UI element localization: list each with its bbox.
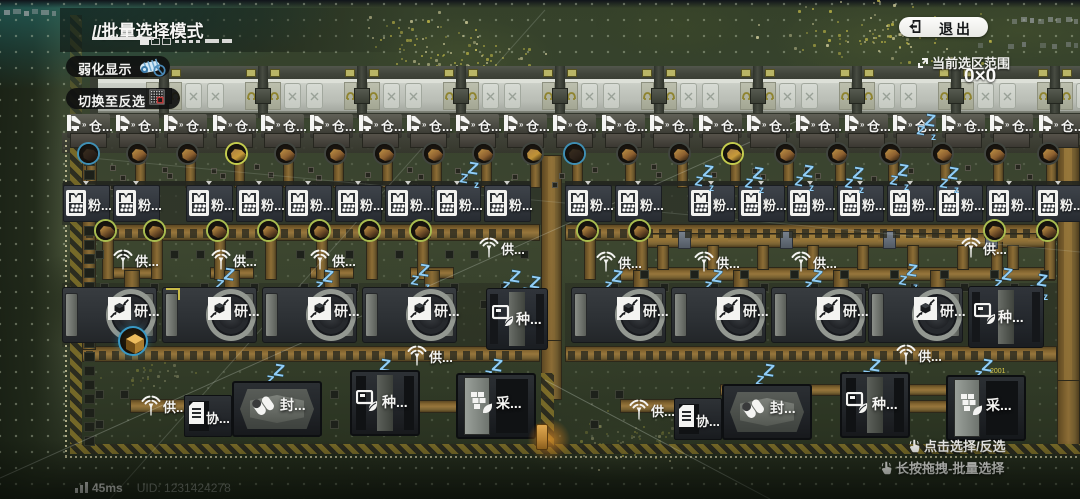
svg-text:Z: Z — [752, 165, 765, 184]
svg-text:Z: Z — [939, 175, 949, 191]
svg-text:z: z — [859, 185, 864, 193]
svg-text:z: z — [474, 180, 479, 188]
svg-text:Z: Z — [322, 268, 335, 287]
svg-text:Z: Z — [694, 173, 704, 189]
svg-text:Z: Z — [811, 268, 824, 287]
svg-text:z: z — [931, 132, 936, 140]
svg-text:z: z — [954, 185, 959, 193]
svg-text:Z: Z — [1001, 266, 1014, 285]
svg-text:Z: Z — [924, 112, 937, 131]
svg-text:z: z — [904, 182, 909, 190]
svg-text:Z: Z — [802, 163, 815, 182]
svg-text:Z: Z — [702, 163, 715, 182]
svg-text:Z: Z — [763, 362, 776, 381]
svg-text:z: z — [709, 183, 714, 191]
svg-text:Z: Z — [947, 165, 960, 184]
svg-text:Z: Z — [906, 262, 919, 281]
svg-text:Z: Z — [744, 175, 754, 191]
svg-text:Z: Z — [611, 268, 624, 287]
svg-text:z: z — [759, 185, 764, 193]
svg-text:Z: Z — [459, 170, 469, 186]
svg-text:Z: Z — [852, 165, 865, 184]
svg-text:Z: Z — [794, 173, 804, 189]
svg-text:Z: Z — [467, 160, 480, 179]
svg-text:Z: Z — [711, 268, 724, 287]
svg-text:Z: Z — [897, 162, 910, 181]
svg-text:Z: Z — [273, 362, 286, 381]
svg-text:Z: Z — [223, 266, 236, 285]
svg-text:Z: Z — [844, 175, 854, 191]
svg-text:Z: Z — [916, 122, 926, 138]
svg-text:Z: Z — [418, 262, 431, 281]
svg-text:z: z — [809, 183, 814, 191]
svg-text:Z: Z — [889, 172, 899, 188]
